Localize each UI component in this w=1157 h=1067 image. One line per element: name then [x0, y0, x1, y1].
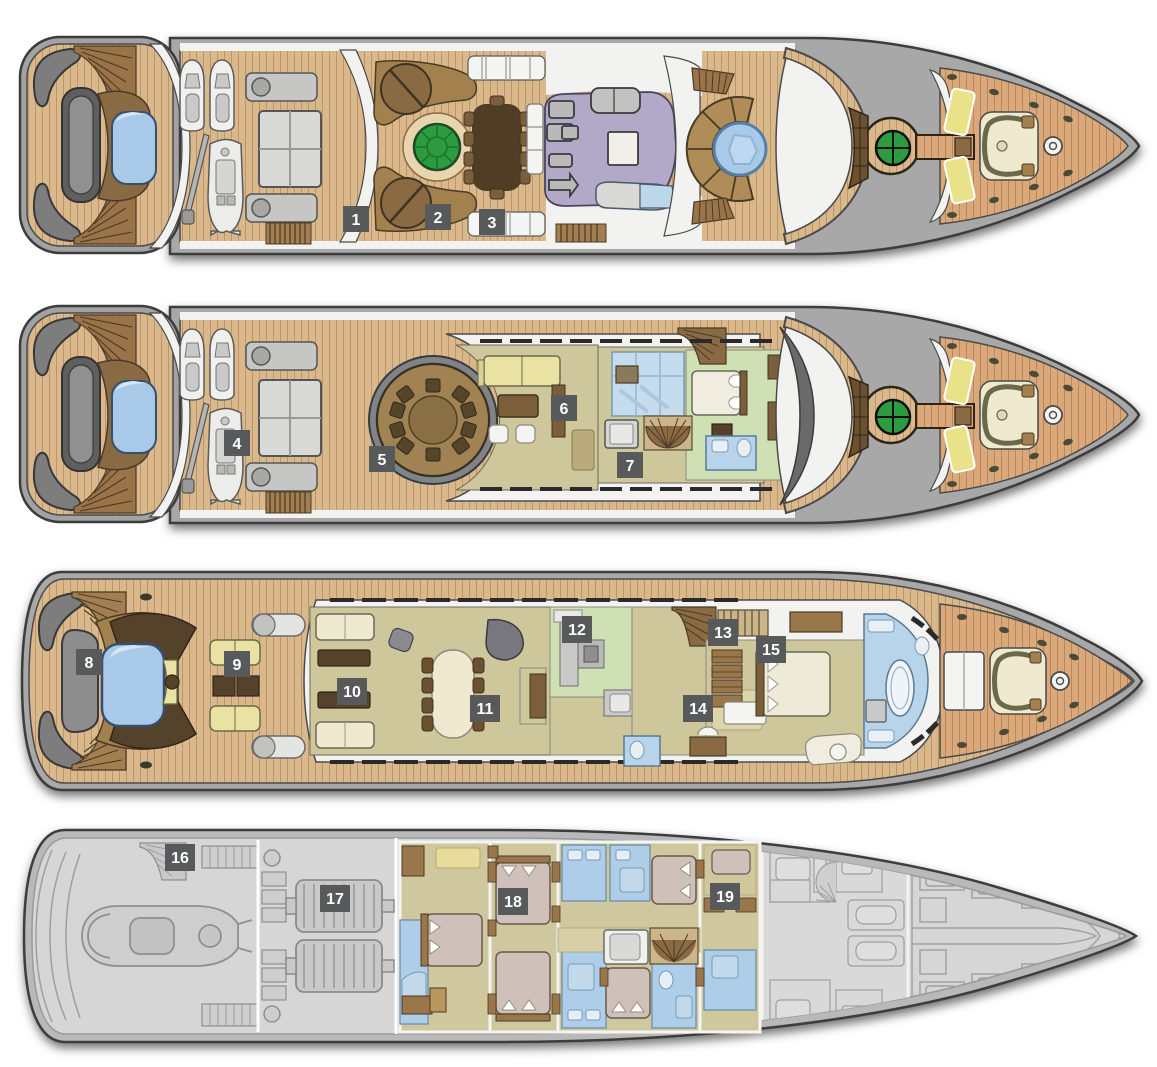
svg-text:2: 2 — [434, 210, 443, 227]
svg-text:11: 11 — [477, 701, 494, 718]
svg-text:13: 13 — [714, 625, 732, 642]
svg-text:4: 4 — [233, 436, 242, 453]
svg-text:12: 12 — [568, 622, 586, 639]
svg-text:7: 7 — [626, 458, 635, 475]
svg-text:16: 16 — [171, 850, 189, 867]
svg-text:8: 8 — [85, 655, 94, 672]
svg-text:18: 18 — [504, 894, 522, 911]
svg-text:9: 9 — [233, 657, 242, 674]
svg-text:1: 1 — [352, 212, 361, 229]
svg-text:17: 17 — [326, 891, 344, 908]
svg-text:10: 10 — [343, 684, 361, 701]
svg-text:6: 6 — [560, 401, 569, 418]
svg-text:19: 19 — [716, 889, 734, 906]
svg-text:14: 14 — [689, 701, 707, 718]
svg-text:3: 3 — [488, 215, 497, 232]
svg-text:5: 5 — [378, 452, 387, 469]
svg-text:15: 15 — [762, 642, 780, 659]
